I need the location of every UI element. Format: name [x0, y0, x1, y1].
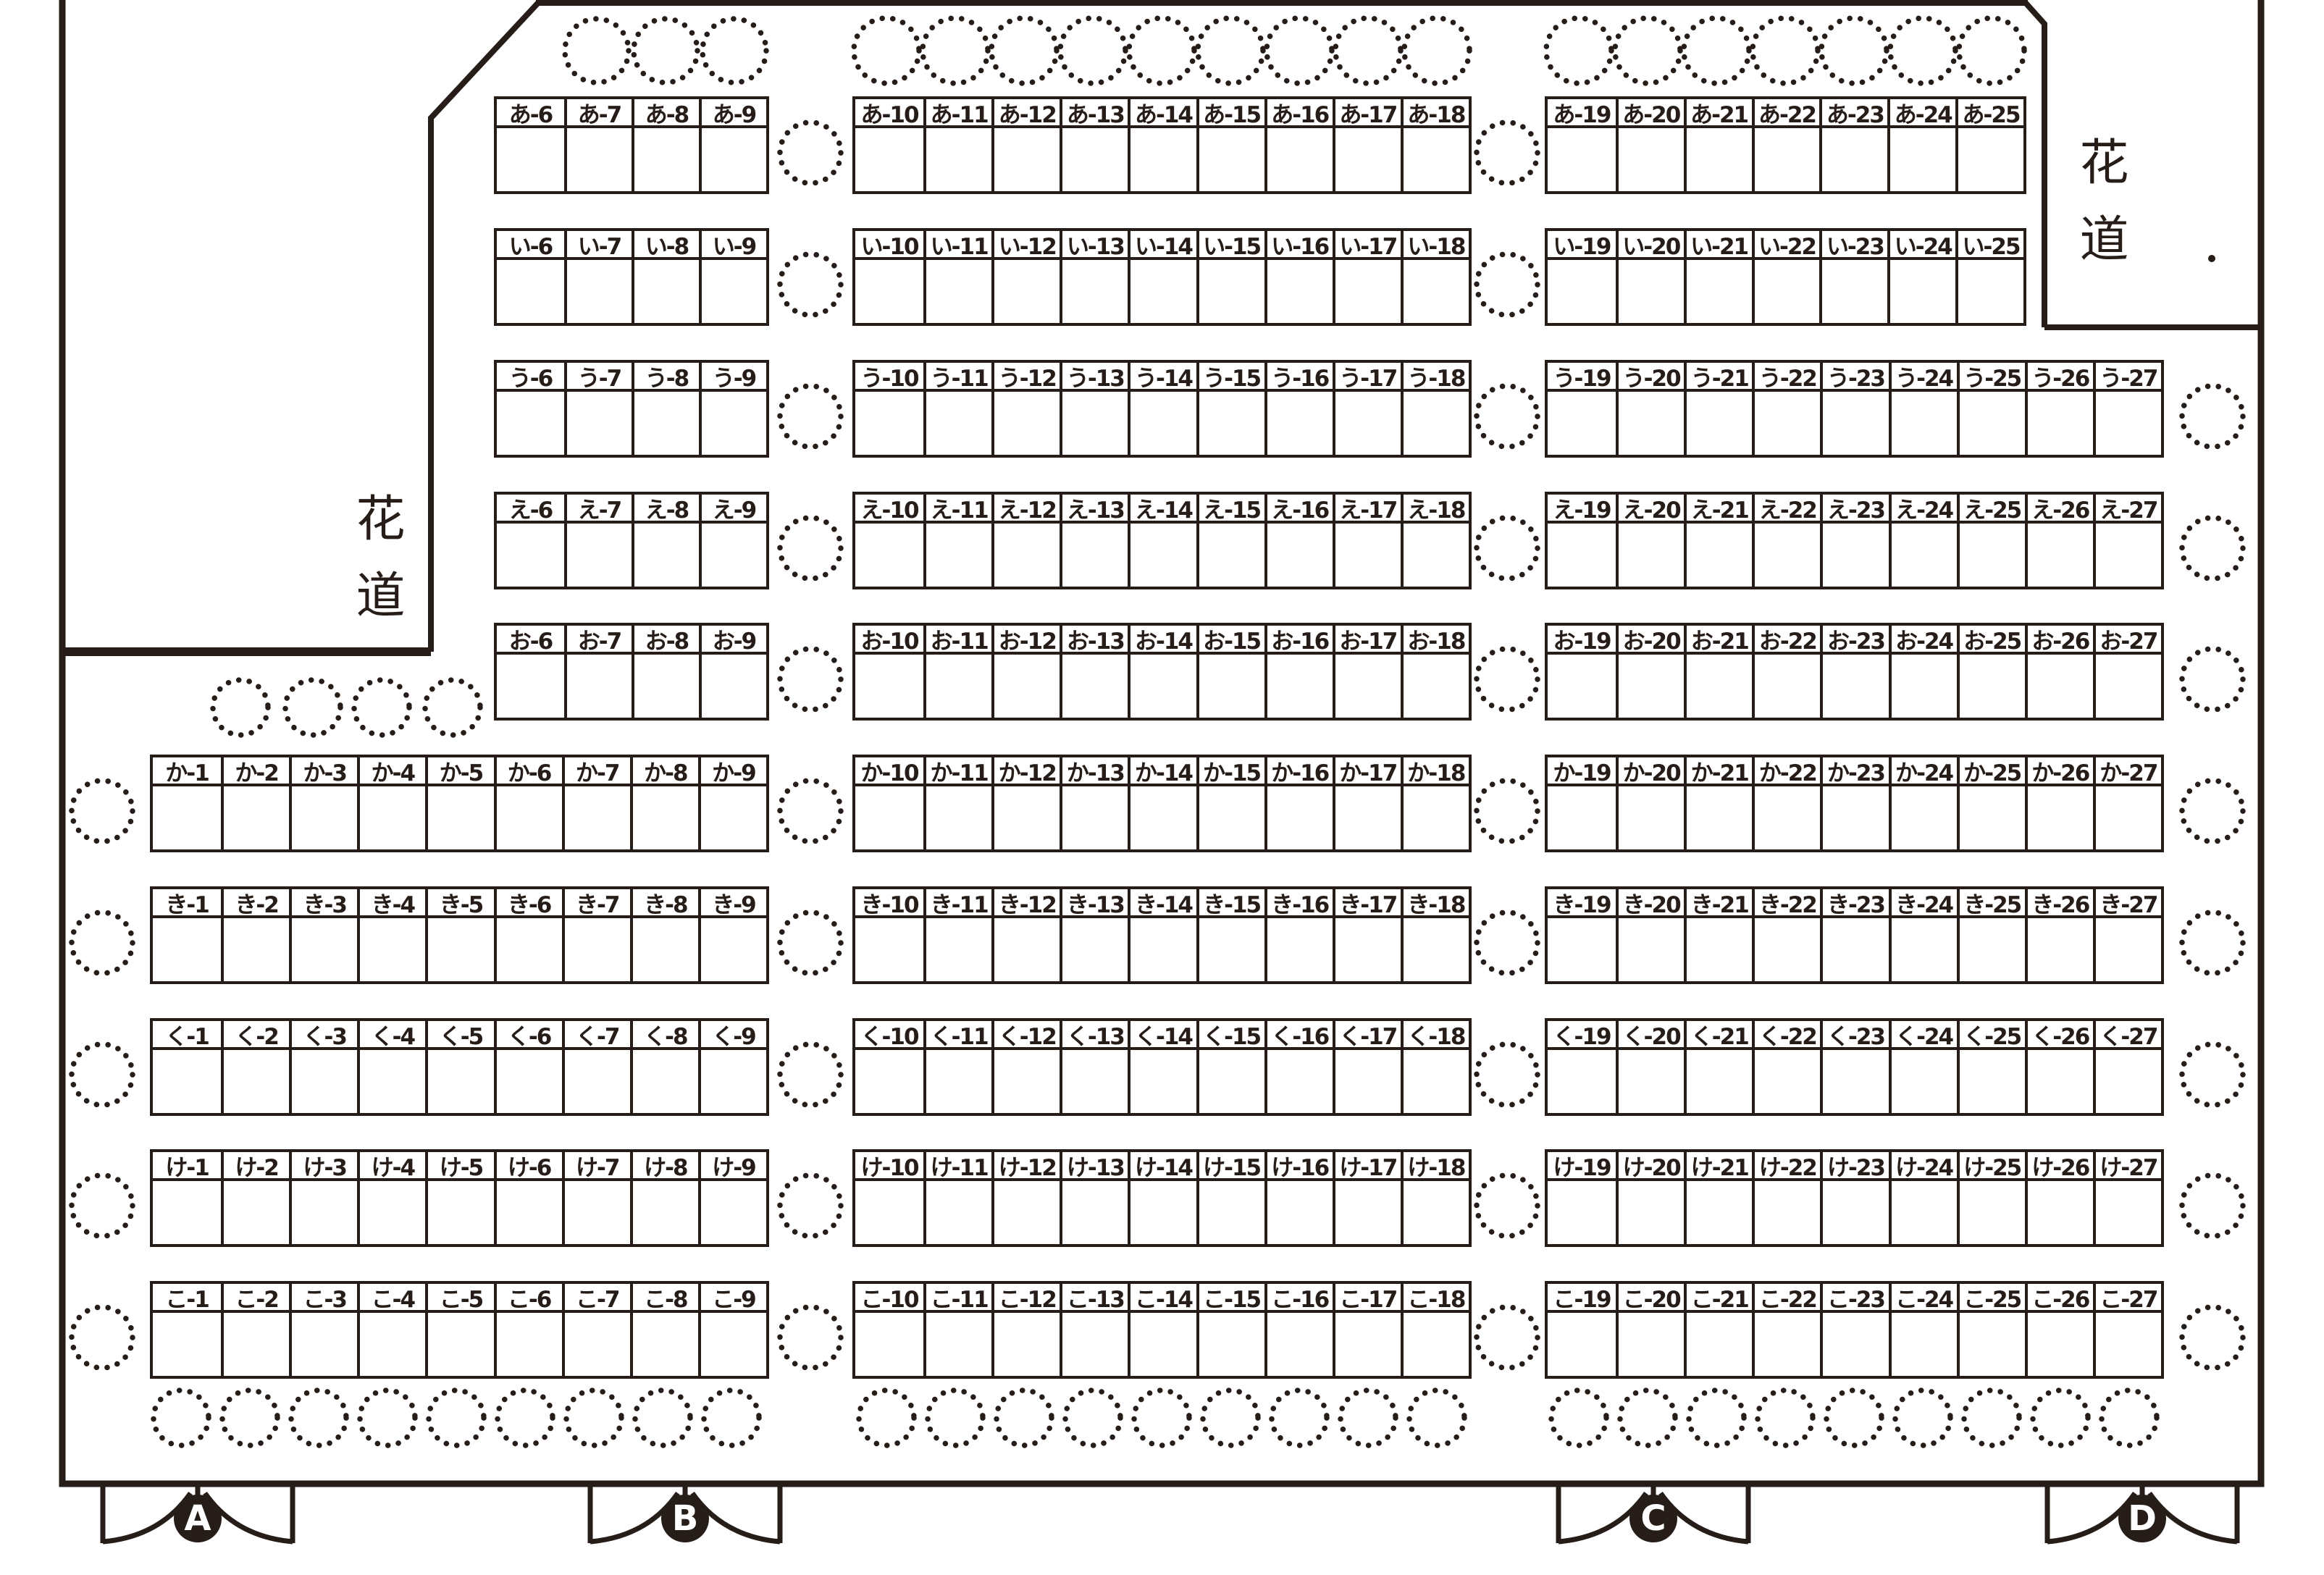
- seat[interactable]: [494, 786, 562, 849]
- seat-label: え-7: [564, 495, 632, 524]
- seat[interactable]: [923, 392, 991, 455]
- seat[interactable]: [2093, 1181, 2161, 1244]
- seat[interactable]: [632, 260, 699, 323]
- seat[interactable]: [425, 1313, 493, 1376]
- seat-label: け-16: [1264, 1152, 1333, 1181]
- seat[interactable]: [699, 128, 766, 191]
- dotted-circle: [1198, 18, 1263, 83]
- seat-label: か-3: [289, 757, 357, 786]
- dotted-circle: [213, 680, 268, 735]
- seat[interactable]: [1548, 1181, 1616, 1244]
- dotted-circle: [780, 781, 841, 841]
- seat[interactable]: [1616, 524, 1684, 587]
- seat[interactable]: [1684, 128, 1752, 191]
- seat[interactable]: [1128, 918, 1196, 981]
- seat[interactable]: [494, 1050, 562, 1113]
- seat-block-row-5-right: お-19お-20お-21お-22お-23お-24お-25お-26お-27: [1545, 623, 2164, 721]
- seat[interactable]: [698, 1313, 766, 1376]
- dotted-circle: [780, 912, 841, 973]
- seat[interactable]: [923, 1181, 991, 1244]
- seat-label: か-9: [698, 757, 766, 786]
- seat[interactable]: [1820, 1181, 1888, 1244]
- seat[interactable]: [562, 786, 630, 849]
- seat[interactable]: [1616, 128, 1684, 191]
- seat[interactable]: [1889, 786, 1957, 849]
- seat[interactable]: [1684, 786, 1752, 849]
- seat-label: お-14: [1128, 626, 1196, 655]
- seat[interactable]: [632, 392, 699, 455]
- seat[interactable]: [1752, 1050, 1820, 1113]
- seat[interactable]: [1752, 655, 1820, 718]
- seat-block-row-2-right: い-19い-20い-21い-22い-23い-24い-25: [1545, 228, 2026, 326]
- seat[interactable]: [991, 1313, 1060, 1376]
- seat[interactable]: [630, 786, 698, 849]
- seat[interactable]: [1128, 1181, 1196, 1244]
- seat[interactable]: [1333, 1050, 1401, 1113]
- seat[interactable]: [923, 524, 991, 587]
- seat[interactable]: [153, 1313, 221, 1376]
- seat[interactable]: [1333, 1181, 1401, 1244]
- seat[interactable]: [855, 786, 923, 849]
- seat[interactable]: [1264, 786, 1333, 849]
- seat[interactable]: [357, 786, 425, 849]
- seat[interactable]: [1889, 1181, 1957, 1244]
- seat[interactable]: [1819, 128, 1887, 191]
- seat[interactable]: [1196, 128, 1264, 191]
- seat[interactable]: [1889, 655, 1957, 718]
- seat[interactable]: [1752, 1313, 1820, 1376]
- seat[interactable]: [1060, 128, 1128, 191]
- seat[interactable]: [855, 1313, 923, 1376]
- seat-label: こ-15: [1196, 1284, 1264, 1313]
- seat[interactable]: [1684, 1313, 1752, 1376]
- seat[interactable]: [1957, 655, 2025, 718]
- seat[interactable]: [1684, 524, 1752, 587]
- seat[interactable]: [1752, 260, 1820, 323]
- seat[interactable]: [2025, 1313, 2093, 1376]
- seat-label: く-21: [1684, 1021, 1752, 1050]
- seat[interactable]: [289, 1181, 357, 1244]
- seat[interactable]: [2025, 1050, 2093, 1113]
- seat[interactable]: [1264, 1050, 1333, 1113]
- seat[interactable]: [1333, 524, 1401, 587]
- seat[interactable]: [497, 260, 564, 323]
- seat-label: か-11: [923, 757, 991, 786]
- seat[interactable]: [2025, 786, 2093, 849]
- seat[interactable]: [425, 786, 493, 849]
- seat-label: き-24: [1889, 889, 1957, 918]
- seat[interactable]: [699, 260, 766, 323]
- seat-label: く-13: [1060, 1021, 1128, 1050]
- seat[interactable]: [1955, 128, 2023, 191]
- seat[interactable]: [1333, 1313, 1401, 1376]
- seat[interactable]: [494, 1313, 562, 1376]
- seat[interactable]: [1887, 128, 1955, 191]
- seat[interactable]: [1401, 1313, 1469, 1376]
- seat[interactable]: [1401, 392, 1469, 455]
- seat[interactable]: [1128, 655, 1196, 718]
- seat[interactable]: [699, 524, 766, 587]
- seat[interactable]: [1820, 918, 1888, 981]
- seat-label: お-9: [699, 626, 766, 655]
- seat[interactable]: [1957, 1181, 2025, 1244]
- seat[interactable]: [1752, 128, 1820, 191]
- dotted-circle: [1477, 781, 1538, 841]
- seat-label: か-22: [1752, 757, 1820, 786]
- seat[interactable]: [698, 786, 766, 849]
- seat[interactable]: [1684, 918, 1752, 981]
- seat[interactable]: [698, 1181, 766, 1244]
- seat[interactable]: [221, 1181, 289, 1244]
- seat-label: く-24: [1889, 1021, 1957, 1050]
- seat[interactable]: [153, 918, 221, 981]
- seat[interactable]: [1548, 1313, 1616, 1376]
- seat-label: う-8: [632, 363, 699, 392]
- seat[interactable]: [1060, 655, 1128, 718]
- seat[interactable]: [221, 918, 289, 981]
- seat[interactable]: [562, 1050, 630, 1113]
- seat[interactable]: [1060, 1313, 1128, 1376]
- seat[interactable]: [1616, 1050, 1684, 1113]
- seat[interactable]: [630, 1313, 698, 1376]
- seat[interactable]: [1957, 786, 2025, 849]
- seat[interactable]: [632, 128, 699, 191]
- seat[interactable]: [1333, 260, 1401, 323]
- seat[interactable]: [2093, 655, 2161, 718]
- door-label-2: B: [656, 1492, 714, 1545]
- seat[interactable]: [562, 1181, 630, 1244]
- seat[interactable]: [2025, 918, 2093, 981]
- seat[interactable]: [632, 655, 699, 718]
- seat[interactable]: [991, 918, 1060, 981]
- seat[interactable]: [357, 1050, 425, 1113]
- seat[interactable]: [1548, 260, 1616, 323]
- seat[interactable]: [1616, 1181, 1684, 1244]
- dotted-circle: [1477, 1044, 1538, 1105]
- seat[interactable]: [923, 786, 991, 849]
- seat[interactable]: [1616, 786, 1684, 849]
- seat[interactable]: [425, 1050, 493, 1113]
- seat[interactable]: [1401, 524, 1469, 587]
- seat[interactable]: [1548, 392, 1616, 455]
- seat[interactable]: [1264, 918, 1333, 981]
- dotted-circle: [704, 1390, 759, 1445]
- seat[interactable]: [923, 260, 991, 323]
- seat-label: き-19: [1548, 889, 1616, 918]
- seat[interactable]: [1128, 786, 1196, 849]
- seat-label: か-1: [153, 757, 221, 786]
- seat[interactable]: [1060, 392, 1128, 455]
- seat[interactable]: [991, 1050, 1060, 1113]
- seat[interactable]: [1333, 128, 1401, 191]
- seat[interactable]: [1752, 1181, 1820, 1244]
- seat[interactable]: [1128, 128, 1196, 191]
- dotted-circle: [1895, 1390, 1950, 1445]
- seat[interactable]: [2025, 524, 2093, 587]
- seat-label: け-26: [2025, 1152, 2093, 1181]
- seat[interactable]: [699, 392, 766, 455]
- seat[interactable]: [1196, 655, 1264, 718]
- seat[interactable]: [153, 1050, 221, 1113]
- seat[interactable]: [1264, 128, 1333, 191]
- seat[interactable]: [153, 786, 221, 849]
- seat[interactable]: [1548, 1050, 1616, 1113]
- seat[interactable]: [1616, 918, 1684, 981]
- seat[interactable]: [1889, 918, 1957, 981]
- seat[interactable]: [562, 1313, 630, 1376]
- seat-label: く-14: [1128, 1021, 1196, 1050]
- seat[interactable]: [855, 128, 923, 191]
- seat[interactable]: [1889, 524, 1957, 587]
- seat[interactable]: [1333, 392, 1401, 455]
- seat[interactable]: [1616, 655, 1684, 718]
- dotted-circle: [1821, 18, 1887, 83]
- seat-label: き-4: [357, 889, 425, 918]
- seat[interactable]: [1752, 392, 1820, 455]
- seat[interactable]: [923, 1050, 991, 1113]
- seat[interactable]: [1684, 1050, 1752, 1113]
- seat[interactable]: [357, 1181, 425, 1244]
- seat[interactable]: [1889, 1050, 1957, 1113]
- seat[interactable]: [497, 655, 564, 718]
- seat-label: く-12: [991, 1021, 1060, 1050]
- seat[interactable]: [1128, 392, 1196, 455]
- seat[interactable]: [289, 918, 357, 981]
- seat[interactable]: [1060, 260, 1128, 323]
- seat-label: か-17: [1333, 757, 1401, 786]
- seat[interactable]: [2093, 1050, 2161, 1113]
- seat[interactable]: [698, 918, 766, 981]
- seat[interactable]: [1548, 918, 1616, 981]
- seat[interactable]: [221, 1050, 289, 1113]
- seat-label: い-15: [1196, 231, 1264, 260]
- seat-label: あ-25: [1955, 99, 2023, 128]
- seat[interactable]: [494, 1181, 562, 1244]
- seat[interactable]: [425, 918, 493, 981]
- seat[interactable]: [1684, 392, 1752, 455]
- seat[interactable]: [1684, 1181, 1752, 1244]
- seat-block-row-3-center: う-10う-11う-12う-13う-14う-15う-16う-17う-18: [852, 360, 1472, 458]
- seat[interactable]: [1401, 128, 1469, 191]
- seat[interactable]: [1820, 655, 1888, 718]
- seat[interactable]: [2025, 392, 2093, 455]
- seat[interactable]: [2093, 392, 2161, 455]
- seat[interactable]: [632, 524, 699, 587]
- seat[interactable]: [1820, 1313, 1888, 1376]
- seat[interactable]: [1819, 260, 1887, 323]
- seat[interactable]: [855, 392, 923, 455]
- seat-label: く-20: [1616, 1021, 1684, 1050]
- seat-label: う-7: [564, 363, 632, 392]
- seat[interactable]: [1264, 524, 1333, 587]
- seat-label: け-14: [1128, 1152, 1196, 1181]
- seat[interactable]: [1548, 524, 1616, 587]
- seat[interactable]: [1196, 1181, 1264, 1244]
- seat[interactable]: [923, 1313, 991, 1376]
- dotted-circle: [498, 1390, 553, 1445]
- seat[interactable]: [497, 128, 564, 191]
- seat[interactable]: [1684, 655, 1752, 718]
- seat[interactable]: [1401, 260, 1469, 323]
- seat[interactable]: [289, 1050, 357, 1113]
- seat[interactable]: [923, 655, 991, 718]
- seat[interactable]: [1333, 918, 1401, 981]
- seat-label: う-21: [1684, 363, 1752, 392]
- seat[interactable]: [1401, 1050, 1469, 1113]
- seat[interactable]: [1401, 1181, 1469, 1244]
- seat[interactable]: [564, 128, 632, 191]
- seat[interactable]: [153, 1181, 221, 1244]
- seat[interactable]: [991, 392, 1060, 455]
- dotted-circle: [1826, 1390, 1882, 1445]
- seat[interactable]: [1060, 524, 1128, 587]
- seat-label: う-13: [1060, 363, 1128, 392]
- seat[interactable]: [1957, 918, 2025, 981]
- seat[interactable]: [1060, 1050, 1128, 1113]
- seat[interactable]: [991, 128, 1060, 191]
- seat[interactable]: [2093, 918, 2161, 981]
- dotted-circle: [354, 680, 409, 735]
- seat[interactable]: [1548, 655, 1616, 718]
- seat[interactable]: [357, 1313, 425, 1376]
- seat[interactable]: [1060, 786, 1128, 849]
- seat[interactable]: [425, 1181, 493, 1244]
- dotted-circle: [154, 1390, 209, 1445]
- seat[interactable]: [562, 918, 630, 981]
- seat[interactable]: [221, 1313, 289, 1376]
- seat[interactable]: [1957, 1313, 2025, 1376]
- seat[interactable]: [221, 786, 289, 849]
- seat[interactable]: [855, 260, 923, 323]
- seat[interactable]: [1887, 260, 1955, 323]
- seat[interactable]: [2093, 786, 2161, 849]
- seat[interactable]: [1128, 260, 1196, 323]
- seat[interactable]: [855, 524, 923, 587]
- seat[interactable]: [630, 1181, 698, 1244]
- seat[interactable]: [991, 655, 1060, 718]
- seat[interactable]: [564, 655, 632, 718]
- seat[interactable]: [564, 524, 632, 587]
- seat[interactable]: [699, 655, 766, 718]
- seat[interactable]: [1264, 260, 1333, 323]
- seat[interactable]: [1955, 260, 2023, 323]
- seat-label: く-22: [1752, 1021, 1820, 1050]
- seat[interactable]: [1128, 1050, 1196, 1113]
- seat[interactable]: [1401, 786, 1469, 849]
- seat[interactable]: [1128, 524, 1196, 587]
- seat[interactable]: [991, 524, 1060, 587]
- seat[interactable]: [1957, 1050, 2025, 1113]
- seat[interactable]: [289, 786, 357, 849]
- seat[interactable]: [991, 1181, 1060, 1244]
- dotted-circle: [780, 386, 841, 447]
- seat[interactable]: [289, 1313, 357, 1376]
- seat[interactable]: [1401, 655, 1469, 718]
- seat[interactable]: [1616, 260, 1684, 323]
- seat[interactable]: [1752, 524, 1820, 587]
- seat-block-row-3-right: う-19う-20う-21う-22う-23う-24う-25う-26う-27: [1545, 360, 2164, 458]
- seat[interactable]: [1196, 1313, 1264, 1376]
- seat[interactable]: [1752, 918, 1820, 981]
- seat[interactable]: [2093, 524, 2161, 587]
- seat[interactable]: [1889, 1313, 1957, 1376]
- seat-label: き-5: [425, 889, 493, 918]
- seat[interactable]: [1548, 786, 1616, 849]
- seat[interactable]: [1957, 524, 2025, 587]
- seat[interactable]: [1333, 655, 1401, 718]
- seat[interactable]: [630, 918, 698, 981]
- dotted-circle: [854, 18, 919, 83]
- seat-label: き-9: [698, 889, 766, 918]
- seat[interactable]: [855, 1181, 923, 1244]
- seat[interactable]: [1196, 260, 1264, 323]
- seat[interactable]: [564, 260, 632, 323]
- seat[interactable]: [564, 392, 632, 455]
- seat[interactable]: [497, 524, 564, 587]
- seat[interactable]: [1196, 392, 1264, 455]
- seat[interactable]: [1196, 524, 1264, 587]
- seat[interactable]: [1684, 260, 1752, 323]
- seat[interactable]: [1616, 392, 1684, 455]
- stray-dot: [2208, 255, 2215, 262]
- seat[interactable]: [1264, 392, 1333, 455]
- seat[interactable]: [1957, 392, 2025, 455]
- seat[interactable]: [1616, 1313, 1684, 1376]
- seat[interactable]: [497, 392, 564, 455]
- seat[interactable]: [991, 786, 1060, 849]
- seat[interactable]: [1264, 1313, 1333, 1376]
- seat[interactable]: [855, 655, 923, 718]
- seat[interactable]: [1820, 524, 1888, 587]
- seat[interactable]: [1889, 392, 1957, 455]
- seat-block-row-4-right: え-19え-20え-21え-22え-23え-24え-25え-26え-27: [1545, 492, 2164, 589]
- seat[interactable]: [855, 918, 923, 981]
- seat[interactable]: [1401, 918, 1469, 981]
- seat[interactable]: [991, 260, 1060, 323]
- seat[interactable]: [855, 1050, 923, 1113]
- seat[interactable]: [2025, 655, 2093, 718]
- seat[interactable]: [1196, 786, 1264, 849]
- seat[interactable]: [1548, 128, 1616, 191]
- dotted-circle: [2182, 1175, 2243, 1236]
- seat[interactable]: [1264, 655, 1333, 718]
- seat[interactable]: [1752, 786, 1820, 849]
- seat[interactable]: [1196, 1050, 1264, 1113]
- seat[interactable]: [698, 1050, 766, 1113]
- seat[interactable]: [1196, 918, 1264, 981]
- seat-label: き-7: [562, 889, 630, 918]
- seat-label: い-9: [699, 231, 766, 260]
- seat[interactable]: [1820, 1050, 1888, 1113]
- seat[interactable]: [1820, 392, 1888, 455]
- seat[interactable]: [630, 1050, 698, 1113]
- seat[interactable]: [1060, 918, 1128, 981]
- seat[interactable]: [1128, 1313, 1196, 1376]
- seat[interactable]: [2093, 1313, 2161, 1376]
- seat[interactable]: [2025, 1181, 2093, 1244]
- seat[interactable]: [1264, 1181, 1333, 1244]
- seat[interactable]: [1060, 1181, 1128, 1244]
- seat[interactable]: [1820, 786, 1888, 849]
- seat[interactable]: [1333, 786, 1401, 849]
- seat[interactable]: [494, 918, 562, 981]
- seat[interactable]: [923, 918, 991, 981]
- seat-label: け-27: [2093, 1152, 2161, 1181]
- seat[interactable]: [357, 918, 425, 981]
- dotted-circle: [72, 1307, 133, 1368]
- seat-label: お-12: [991, 626, 1060, 655]
- seat[interactable]: [923, 128, 991, 191]
